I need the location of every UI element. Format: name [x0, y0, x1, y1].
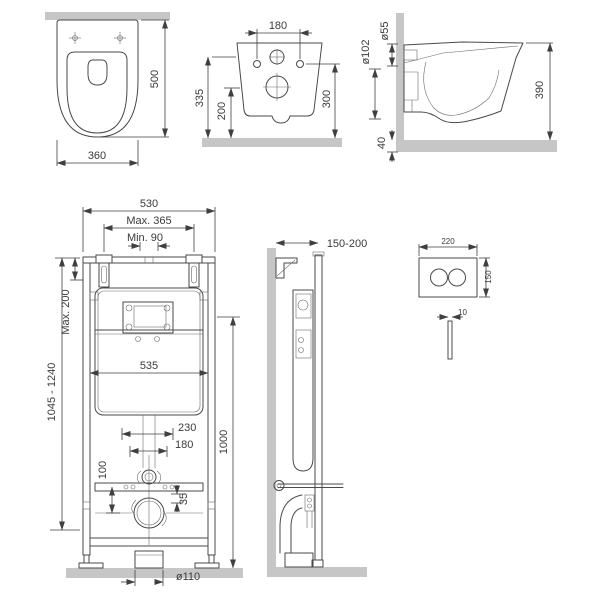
- drain-connector: [305, 495, 314, 528]
- flush-button-large: [431, 269, 448, 286]
- fixing-point-marker: [114, 32, 126, 44]
- frame-left-rail: [83, 263, 90, 555]
- inlet-spigot: [404, 50, 417, 60]
- dimension-inlet-dia-55: ø55: [379, 22, 398, 66]
- frame-feet: [79, 555, 219, 568]
- dimension-plate-height-150: 150: [479, 258, 493, 297]
- dimension-inlet-height-335: 335: [194, 57, 236, 138]
- dim-label-min90: Min. 90: [127, 232, 163, 244]
- dim-label-360: 360: [88, 150, 106, 162]
- cistern-outline: [95, 288, 203, 415]
- toilet-back-outline: [237, 43, 322, 123]
- toilet-seat-outline: [67, 52, 127, 133]
- frame-side-view: 150-200: [267, 238, 367, 577]
- dim-label-180b: 180: [175, 439, 193, 451]
- dimension-offset-35: 35: [171, 485, 190, 512]
- dim-label-1045-1240: 1045 - 1240: [46, 363, 58, 422]
- toilet-side-view: ø55 ø102 40 390: [360, 13, 557, 162]
- dim-label-40: 40: [376, 137, 388, 149]
- floor-surface: [202, 138, 342, 147]
- dim-label-max365: Max. 365: [126, 215, 171, 227]
- dimension-plate-width-220: 220: [419, 237, 477, 256]
- wall-surface: [267, 248, 276, 575]
- flush-button-small: [449, 269, 466, 286]
- dimension-max-200: Max. 200: [60, 258, 83, 335]
- dim-label-100: 100: [97, 461, 109, 479]
- mounting-rod: [274, 481, 343, 491]
- toilet-side-outline: [404, 42, 523, 123]
- fixing-point-marker: [69, 32, 81, 44]
- dimension-offset-230: 230: [122, 422, 196, 440]
- dim-label-10: 10: [458, 308, 467, 317]
- dimension-depth-390: 390: [526, 43, 553, 140]
- dimension-outlet-dia-102: ø102: [360, 39, 381, 119]
- wall-surface: [396, 13, 404, 140]
- hanger-tab-right: [186, 255, 202, 263]
- floor-surface: [396, 140, 557, 152]
- toilet-top-view: 500 360: [45, 12, 170, 166]
- rail-clip-right: [208, 502, 215, 509]
- dim-label-535: 535: [140, 360, 158, 372]
- floor-surface: [66, 568, 243, 578]
- toilet-body-outline: [57, 20, 138, 137]
- dim-label-230: 230: [178, 422, 196, 434]
- outlet-hole: [263, 73, 291, 101]
- fixing-hole-left: [254, 61, 261, 68]
- dimension-height-1000: 1000: [217, 317, 240, 568]
- dim-label-35: 35: [178, 493, 190, 505]
- wall-surface: [45, 12, 170, 20]
- technical-drawing: 500 360 180: [0, 0, 600, 600]
- dim-label-180: 180: [269, 20, 287, 32]
- dimension-offset-180: 180: [130, 439, 193, 457]
- rim-line: [404, 46, 518, 63]
- cistern-side: [293, 290, 313, 471]
- wall-bracket: [276, 258, 297, 278]
- dim-label-1000: 1000: [218, 430, 230, 454]
- dim-label-530: 530: [140, 198, 158, 210]
- dim-label-o102: ø102: [360, 39, 372, 64]
- rail-foot: [312, 560, 323, 567]
- panel-screw: [155, 337, 160, 342]
- dim-label-500: 500: [149, 70, 161, 88]
- hanger-tab-left: [96, 255, 112, 263]
- dimension-fixing-height-300: 300: [306, 64, 340, 138]
- dim-label-200: 200: [216, 102, 228, 120]
- dim-label-150: 150: [484, 270, 493, 284]
- mounting-box: [404, 72, 418, 112]
- fixing-hole-right: [297, 61, 304, 68]
- toilet-back-view: 180 335 200 300: [194, 20, 342, 147]
- frame-front-view: 530 Max. 365 Min. 90 Max. 200 1045 - 124…: [46, 198, 243, 586]
- dimension-wall-distance: 150-200: [276, 238, 367, 250]
- frame-rail-side: [315, 255, 322, 560]
- access-panel: [123, 302, 173, 333]
- dimension-depth-500: 500: [100, 20, 169, 137]
- dimension-offset-100: 100: [97, 461, 120, 513]
- inlet-hole: [269, 49, 285, 65]
- panel-screw: [136, 337, 141, 342]
- floor-surface: [267, 567, 367, 577]
- dimension-min-90: Min. 90: [127, 232, 170, 251]
- dim-label-o55: ø55: [379, 22, 391, 41]
- rail-clip-left: [83, 502, 90, 509]
- cistern-inner-line: [98, 291, 200, 412]
- dimension-clearance-40: 40: [376, 130, 398, 162]
- dim-label-300: 300: [321, 90, 333, 108]
- dimension-cistern-535: 535: [90, 360, 208, 373]
- drain-outlet-box: [135, 551, 163, 568]
- dimension-hole-spacing-180: 180: [245, 20, 312, 59]
- toilet-bowl-outline: [88, 60, 107, 85]
- dim-label-220: 220: [441, 237, 455, 246]
- dim-label-150-200: 150-200: [327, 238, 367, 250]
- dim-label-o110: ø110: [176, 571, 200, 583]
- flush-plate-edge-view: 10: [437, 308, 467, 359]
- hanger-bolt-right: [189, 263, 199, 287]
- flush-plate-view: 220 150 10: [419, 237, 493, 359]
- drain-bend: [280, 495, 313, 567]
- dim-label-390: 390: [534, 81, 546, 99]
- cistern-clip-right: [200, 292, 208, 300]
- dimension-width-360: 360: [57, 140, 138, 166]
- frame-right-rail: [208, 263, 215, 555]
- dimension-outlet-height-200: 200: [216, 88, 240, 138]
- bowl-inner-line: [424, 62, 499, 115]
- cistern-clip-left: [90, 292, 98, 300]
- hanger-bolt-left: [99, 263, 109, 287]
- dim-label-335: 335: [194, 89, 206, 107]
- flush-pipe: [143, 415, 155, 545]
